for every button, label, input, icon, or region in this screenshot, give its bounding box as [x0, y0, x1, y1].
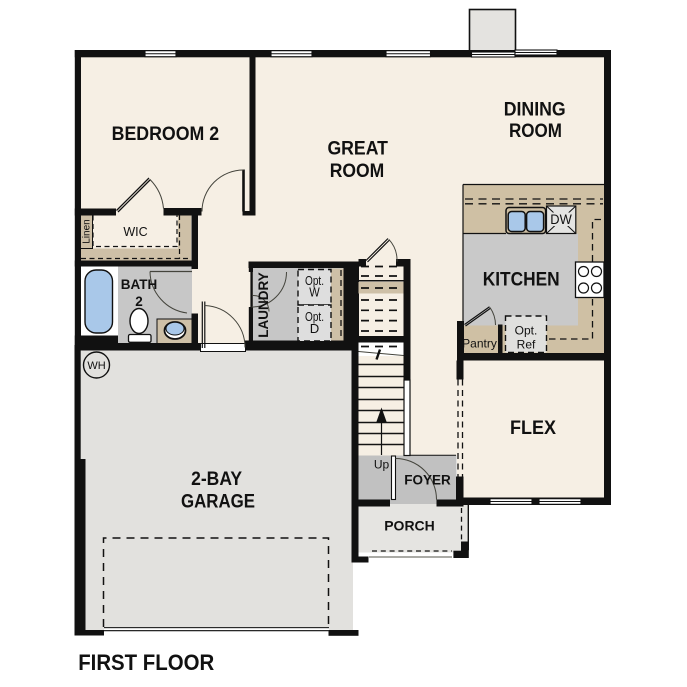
svg-text:FIRST FLOOR: FIRST FLOOR: [78, 650, 214, 675]
svg-text:PORCH: PORCH: [384, 518, 435, 534]
svg-text:LAUNDRY: LAUNDRY: [256, 272, 271, 338]
svg-text:GREAT: GREAT: [327, 138, 388, 160]
svg-text:Opt.: Opt.: [515, 324, 538, 338]
svg-text:BATH: BATH: [121, 277, 158, 292]
svg-text:2: 2: [135, 294, 143, 309]
svg-text:KITCHEN: KITCHEN: [483, 269, 560, 291]
svg-text:ROOM: ROOM: [509, 120, 562, 142]
svg-text:W: W: [309, 286, 320, 300]
svg-text:Pantry: Pantry: [462, 337, 497, 351]
svg-text:DINING: DINING: [504, 99, 566, 121]
svg-text:FOYER: FOYER: [404, 472, 451, 487]
svg-text:2-BAY: 2-BAY: [191, 468, 242, 490]
svg-text:FLEX: FLEX: [510, 417, 556, 439]
svg-text:Ref: Ref: [517, 338, 536, 352]
svg-text:DW: DW: [550, 212, 572, 227]
svg-text:Linen: Linen: [82, 219, 93, 243]
svg-text:GARAGE: GARAGE: [181, 491, 255, 513]
svg-text:ROOM: ROOM: [330, 160, 385, 182]
svg-text:WIC: WIC: [123, 225, 147, 239]
svg-text:Up: Up: [374, 458, 390, 472]
svg-text:WH: WH: [87, 360, 105, 372]
svg-text:BEDROOM 2: BEDROOM 2: [112, 123, 220, 145]
svg-text:D: D: [310, 322, 320, 336]
